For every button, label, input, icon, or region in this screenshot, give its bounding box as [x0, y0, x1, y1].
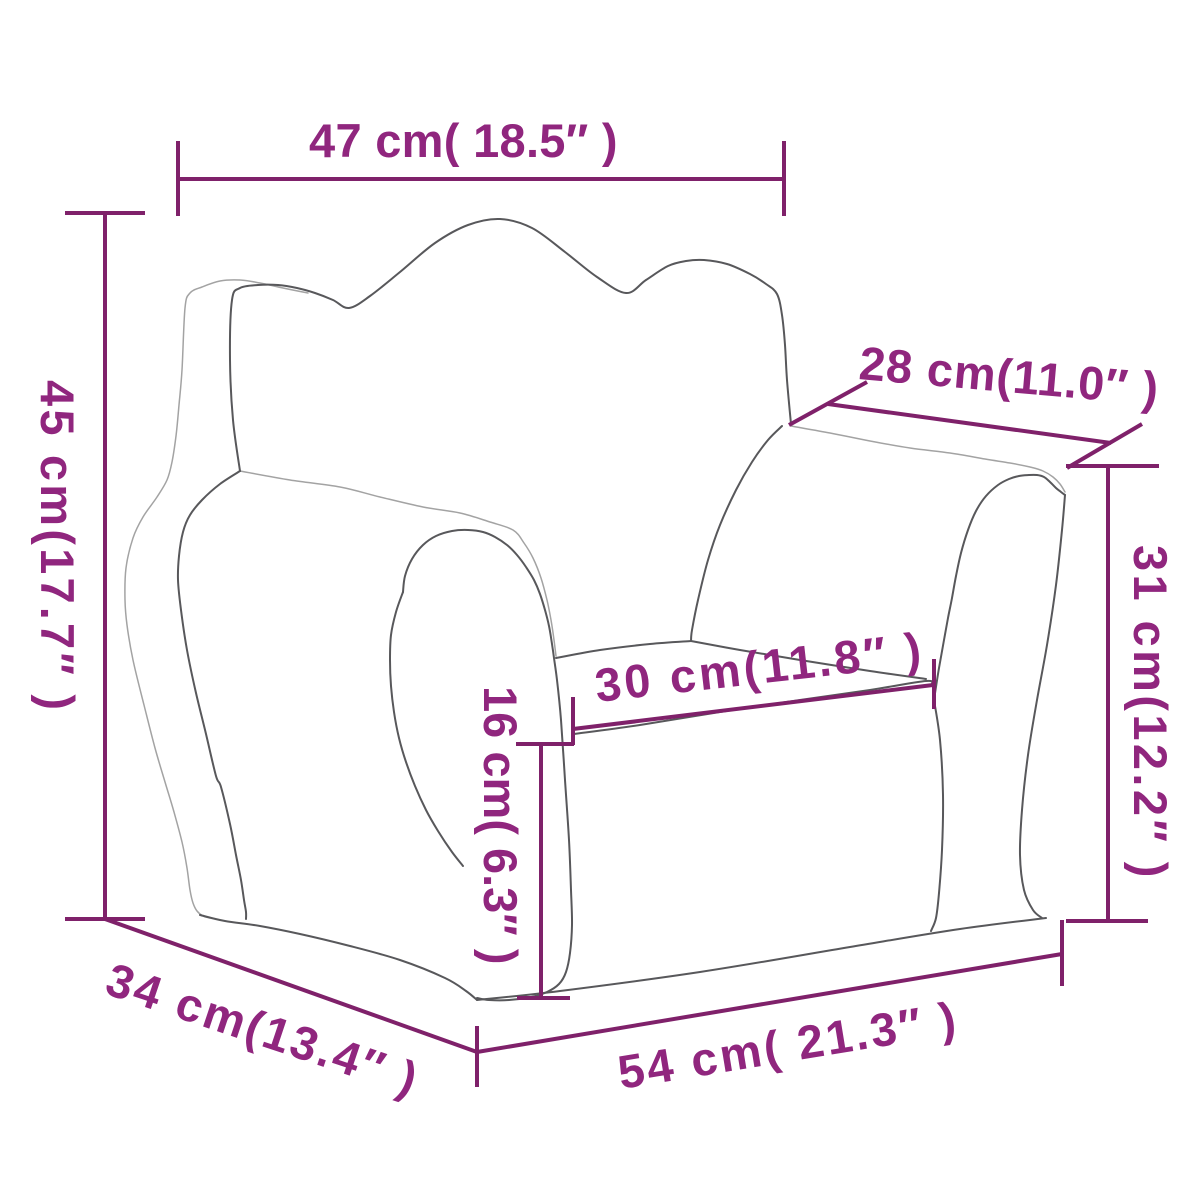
svg-text:47 cm( 18.5″ ): 47 cm( 18.5″ ) — [309, 114, 618, 167]
svg-text:16 cm( 6.3″ ): 16 cm( 6.3″ ) — [474, 686, 527, 965]
svg-text:31 cm(12.2″ ): 31 cm(12.2″ ) — [1124, 545, 1177, 881]
svg-text:45 cm(17.7″ ): 45 cm(17.7″ ) — [31, 380, 84, 713]
